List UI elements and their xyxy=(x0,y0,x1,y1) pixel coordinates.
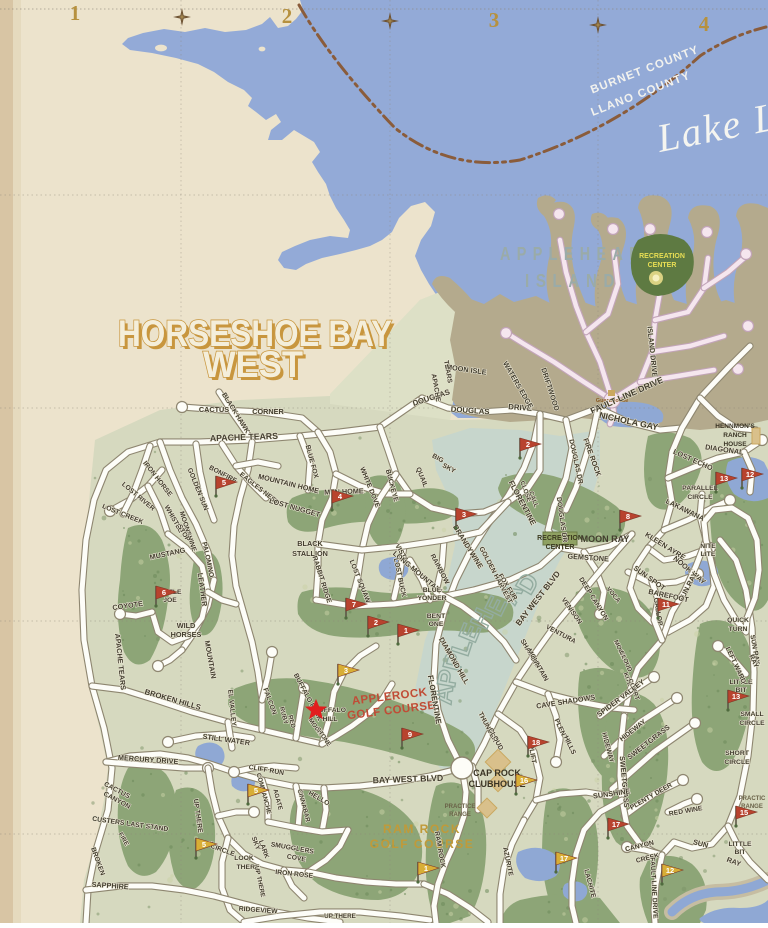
svg-text:LITTLE: LITTLE xyxy=(729,841,752,848)
svg-text:PARALLEL: PARALLEL xyxy=(682,485,718,492)
svg-text:2: 2 xyxy=(374,618,378,627)
svg-text:RAM ROCK: RAM ROCK xyxy=(383,822,461,836)
svg-text:HORSES: HORSES xyxy=(171,630,202,639)
svg-text:PRACTIC: PRACTIC xyxy=(739,796,766,802)
svg-text:WILD: WILD xyxy=(177,621,196,630)
svg-text:MOON RAY: MOON RAY xyxy=(581,534,630,544)
svg-text:3: 3 xyxy=(344,666,348,675)
svg-text:JOE: JOE xyxy=(163,597,177,604)
svg-text:5: 5 xyxy=(222,478,226,487)
svg-text:6: 6 xyxy=(162,588,166,597)
svg-text:3: 3 xyxy=(489,8,500,32)
svg-text:PRACTICE: PRACTICE xyxy=(445,804,476,810)
svg-text:APPLEHEAD: APPLEHEAD xyxy=(500,244,646,264)
svg-text:CENTER: CENTER xyxy=(546,544,575,551)
svg-text:12: 12 xyxy=(746,470,754,479)
svg-text:1: 1 xyxy=(404,626,408,635)
svg-text:CIRCLE: CIRCLE xyxy=(739,720,765,727)
svg-text:SHORT: SHORT xyxy=(725,750,750,757)
svg-text:RECREATION: RECREATION xyxy=(639,253,685,260)
svg-text:16: 16 xyxy=(520,776,528,785)
svg-text:7: 7 xyxy=(352,600,356,609)
svg-text:ONE: ONE xyxy=(429,621,444,628)
svg-text:2: 2 xyxy=(526,440,530,449)
svg-text:RANGE: RANGE xyxy=(449,812,471,818)
svg-text:RECREATION: RECREATION xyxy=(537,535,583,542)
svg-text:SMALL: SMALL xyxy=(740,711,763,718)
svg-text:CORNER: CORNER xyxy=(252,407,284,416)
svg-text:CIRCLE: CIRCLE xyxy=(687,494,713,501)
svg-text:12: 12 xyxy=(666,866,674,875)
svg-text:BENT: BENT xyxy=(427,613,446,620)
svg-text:HILL: HILL xyxy=(322,716,337,723)
svg-text:15: 15 xyxy=(740,808,748,817)
svg-text:3: 3 xyxy=(462,510,466,519)
svg-text:1: 1 xyxy=(70,1,81,25)
svg-text:9: 9 xyxy=(408,730,412,739)
svg-text:STALLION: STALLION xyxy=(292,549,328,558)
svg-text:CENTER: CENTER xyxy=(648,262,677,269)
svg-text:5: 5 xyxy=(254,786,258,795)
svg-text:CACTUS: CACTUS xyxy=(199,405,229,414)
svg-text:CIRCLE: CIRCLE xyxy=(724,759,750,766)
svg-text:WEST: WEST xyxy=(203,344,303,385)
svg-text:BIT: BIT xyxy=(735,849,747,856)
svg-text:UP THERE: UP THERE xyxy=(324,913,356,920)
svg-text:13: 13 xyxy=(732,692,740,701)
svg-text:8: 8 xyxy=(626,512,630,521)
svg-text:5: 5 xyxy=(202,840,206,849)
svg-text:BLUE: BLUE xyxy=(423,587,442,594)
svg-text:BLACK: BLACK xyxy=(297,539,323,548)
svg-text:17: 17 xyxy=(560,854,568,863)
svg-text:ISLAND: ISLAND xyxy=(525,271,621,291)
svg-text:LITE: LITE xyxy=(701,551,716,558)
svg-text:18: 18 xyxy=(532,738,540,747)
svg-text:NITE: NITE xyxy=(700,543,716,550)
svg-text:CAP ROCK: CAP ROCK xyxy=(473,768,521,778)
svg-text:17: 17 xyxy=(612,820,620,829)
svg-text:1: 1 xyxy=(424,864,428,873)
svg-text:RANCH: RANCH xyxy=(723,432,747,439)
svg-text:HENNMON'S: HENNMON'S xyxy=(715,423,755,430)
svg-text:QUICK: QUICK xyxy=(727,617,749,624)
svg-text:LOOK: LOOK xyxy=(234,855,254,862)
svg-text:13: 13 xyxy=(720,474,728,483)
svg-text:YONDER: YONDER xyxy=(417,595,446,602)
svg-text:GOLF COURSE: GOLF COURSE xyxy=(370,837,475,851)
svg-text:11: 11 xyxy=(662,600,670,609)
svg-text:2: 2 xyxy=(282,4,293,28)
svg-text:4: 4 xyxy=(699,12,710,36)
svg-text:TURN: TURN xyxy=(729,626,748,633)
